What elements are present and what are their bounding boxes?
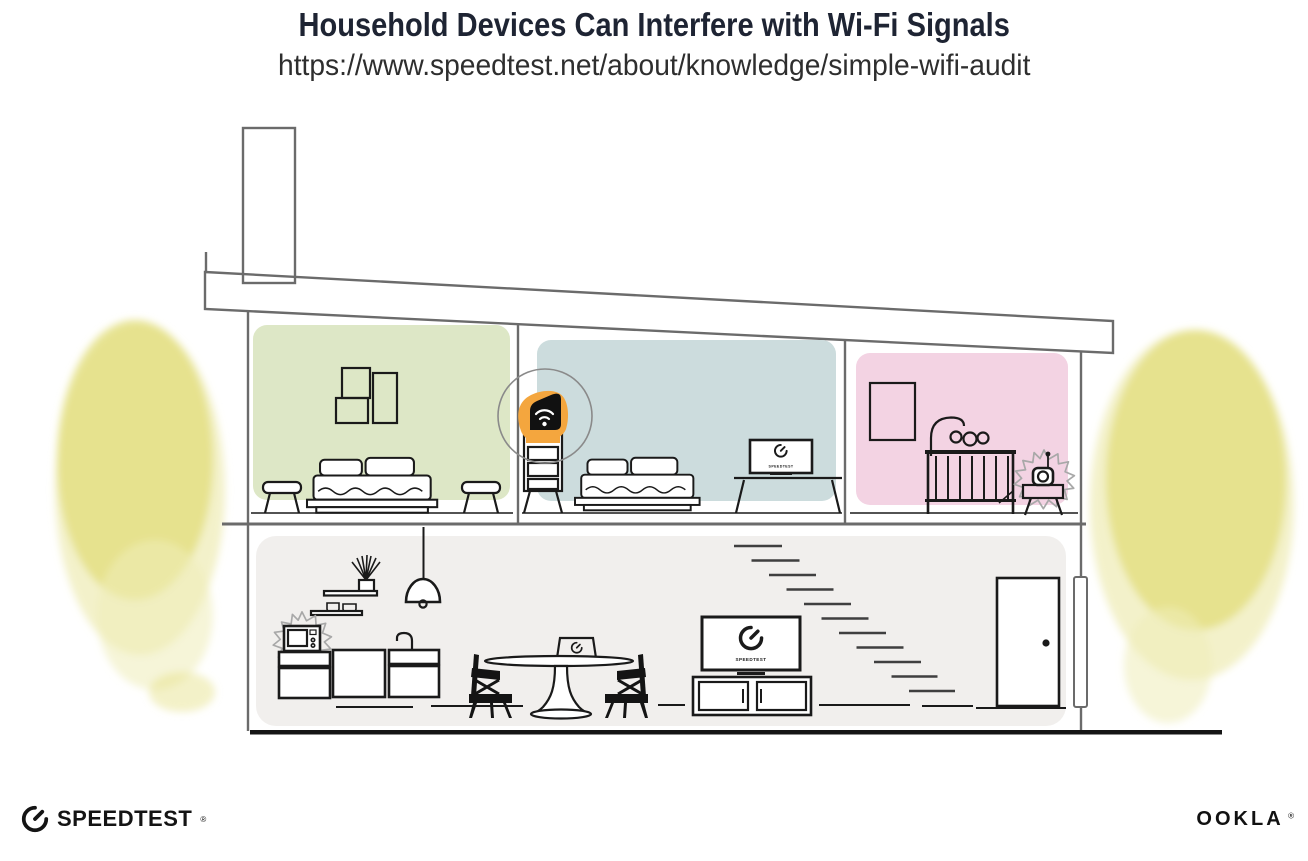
infographic-page: Household Devices Can Interfere with Wi-… (0, 0, 1308, 861)
kitchen-drawer (279, 652, 330, 666)
foliage-right (1090, 330, 1294, 723)
door (997, 578, 1059, 706)
living-tv-label: SPEEDTEST (736, 657, 767, 662)
speedtest-logo: SPEEDTEST ® (20, 804, 206, 834)
kitchen-cabinet (279, 668, 330, 698)
registered-mark: ® (1288, 812, 1294, 821)
speedtest-wordmark: SPEEDTEST (57, 806, 192, 832)
tv-stand (770, 473, 792, 476)
speedtest-gauge-icon (20, 804, 50, 834)
shelf (324, 591, 377, 596)
baby-monitor-antenna-tip (1046, 452, 1051, 457)
dining-table-base (531, 710, 591, 719)
chimney (243, 128, 295, 283)
registered-mark: ® (200, 815, 206, 824)
ground-line (250, 730, 1222, 735)
dresser-drawer (528, 447, 558, 460)
kitchen-cabinet (389, 666, 439, 697)
entryway (997, 577, 1087, 707)
kitchen-cabinet (333, 650, 385, 697)
downspout (1074, 577, 1087, 707)
crib-top-rail (925, 450, 1016, 454)
dresser-drawer (528, 463, 558, 476)
bedroom-tv-label: SPEEDTEST (769, 465, 794, 469)
kitchen-drawer (389, 650, 439, 664)
living-room-tv (702, 617, 800, 670)
ookla-wordmark: OOKLA (1196, 808, 1283, 830)
shelf (311, 611, 362, 615)
tv-stand (737, 672, 765, 675)
dresser-drawer (528, 479, 558, 489)
house-illustration: SPEEDTEST (0, 0, 1308, 861)
foliage-left (55, 320, 225, 712)
monitor-table (1023, 485, 1063, 498)
door-knob (1042, 639, 1049, 646)
router-glow-base (526, 432, 560, 443)
plant-pot (359, 580, 374, 591)
dining-table-top (485, 656, 633, 666)
wifi-icon-dot (542, 422, 546, 426)
ookla-logo: OOKLA ® (1196, 808, 1294, 831)
